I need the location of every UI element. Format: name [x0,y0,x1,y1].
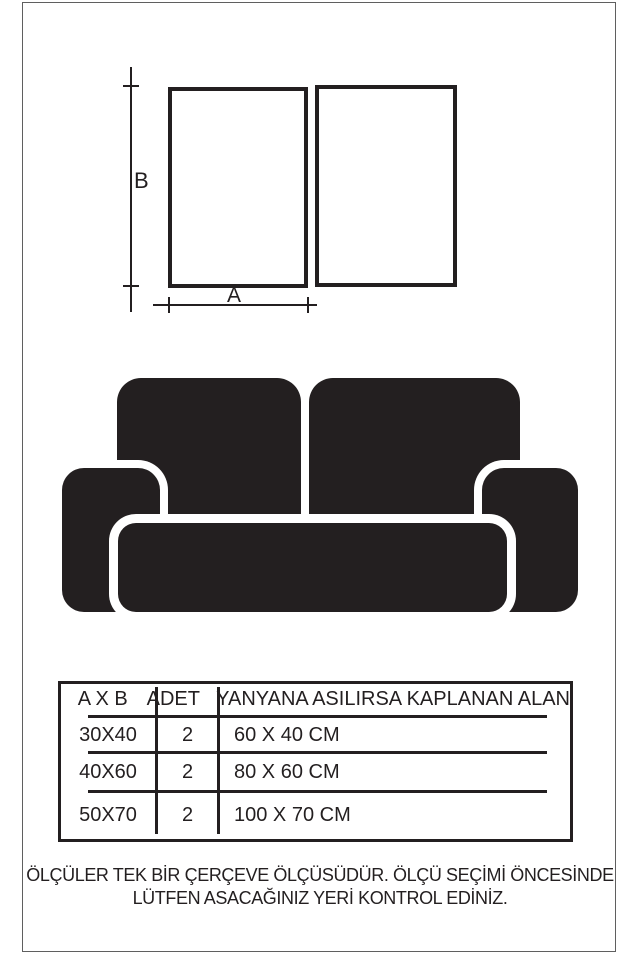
table-cell-size: 30X40 [61,719,155,751]
table-row-divider-3 [88,790,547,793]
table-header-axb: A X B [61,684,144,715]
table-column-divider-1 [155,687,158,834]
table-row: 30X40 2 60 X 40 CM [61,719,570,751]
height-dimension-tick-bottom [123,285,139,287]
table-cell-covered-area: 60 X 40 CM [220,719,570,751]
table-cell-covered-area: 100 X 70 CM [220,794,570,836]
table-header-row: A X B ADET YANYANA ASILIRSA KAPLANAN ALA… [61,684,570,715]
height-dimension-label: B [134,170,158,192]
table-cell-covered-area: 80 X 60 CM [220,755,570,789]
disclaimer-line-2: LÜTFEN ASACAĞINIZ YERİ KONTROL EDİNİZ. [20,887,620,910]
frame-outline-right [315,85,457,287]
sofa-seat-cushion [118,523,507,612]
table-cell-quantity: 2 [155,755,220,789]
product-size-infographic: B A A X B ADET YANYANA ASILIRSA KAPLANAN… [0,0,640,960]
table-column-divider-2 [217,687,220,834]
table-row: 50X70 2 100 X 70 CM [61,794,570,836]
table-cell-size: 40X60 [61,755,155,789]
width-dimension-label: A [220,285,248,306]
table-cell-quantity: 2 [155,719,220,751]
table-row: 40X60 2 80 X 60 CM [61,755,570,789]
table-cell-quantity: 2 [155,794,220,836]
disclaimer-line-1: ÖLÇÜLER TEK BİR ÇERÇEVE ÖLÇÜSÜDÜR. ÖLÇÜ … [20,864,620,887]
disclaimer-note: ÖLÇÜLER TEK BİR ÇERÇEVE ÖLÇÜSÜDÜR. ÖLÇÜ … [20,864,620,910]
table-cell-size: 50X70 [61,794,155,836]
table-header-adet: ADET [144,684,202,715]
height-dimension-tick-top [123,85,139,87]
width-dimension-tick-right [307,297,309,313]
height-dimension-line [130,67,132,312]
table-header-covered-area: YANYANA ASILIRSA KAPLANAN ALAN [202,684,570,715]
table-row-divider-1 [88,715,547,718]
table-row-divider-2 [88,751,547,754]
frame-outline-left [168,87,308,288]
width-dimension-tick-left [168,297,170,313]
